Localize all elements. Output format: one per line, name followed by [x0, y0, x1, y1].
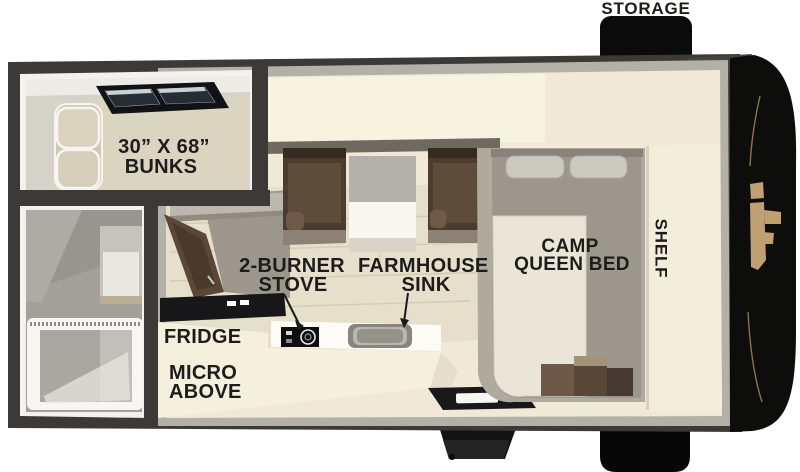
- label-bunks: BUNKS: [100, 157, 222, 177]
- label-bunks-size: 30” X 68”: [103, 137, 225, 157]
- queen-bed: [477, 148, 645, 402]
- overhead-cabinet: [262, 74, 545, 154]
- label-stove-line1: 2-BURNER: [232, 256, 352, 276]
- label-shelf: SHELF: [653, 199, 670, 299]
- floorplan-page: STORAGE 30” X 68” BUNKS 2-BURNER STOVE F…: [0, 0, 800, 472]
- sink-icon: [348, 324, 412, 348]
- label-storage: STORAGE: [585, 0, 707, 17]
- label-bed-line2: QUEEN BED: [512, 255, 632, 274]
- kitchen-counter: [271, 321, 441, 351]
- label-micro-line1: MICRO: [169, 363, 237, 383]
- wall-bath-right: [144, 198, 158, 428]
- label-stove-line2: STOVE: [233, 275, 353, 295]
- label-sink-line2: SINK: [366, 275, 486, 295]
- wall-bath-top: [8, 190, 270, 206]
- bunk-room: [20, 70, 256, 200]
- dinette-table: [349, 156, 416, 252]
- label-sink-line1: FARMHOUSE: [358, 256, 482, 276]
- bathroom-window: [100, 226, 142, 304]
- bathroom: [20, 204, 148, 418]
- floorplan-drawing: [0, 0, 800, 472]
- label-micro-line2: ABOVE: [169, 382, 242, 402]
- bathtub: [27, 318, 143, 410]
- label-fridge: FRIDGE: [164, 327, 241, 347]
- front-cap: [730, 55, 796, 432]
- wall-bunk-divider: [252, 64, 268, 204]
- stove-icon: [281, 327, 319, 347]
